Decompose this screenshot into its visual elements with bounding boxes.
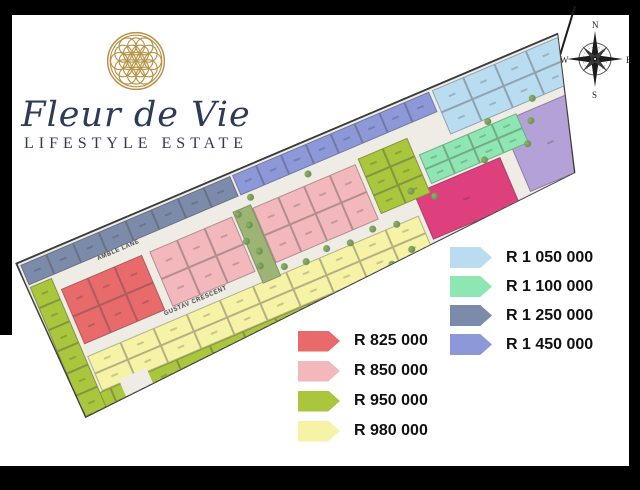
brand-block: Fleur de Vie LIFESTYLE ESTATE bbox=[8, 28, 264, 153]
compass-east-label: E bbox=[626, 55, 632, 65]
legend-item: R 1 050 000 bbox=[450, 243, 593, 272]
legend-swatch-icon bbox=[298, 361, 340, 382]
legend-item: R 980 000 bbox=[298, 416, 428, 446]
brand-name: Fleur de Vie bbox=[8, 98, 264, 132]
price-legend-left: R 825 000R 850 000R 950 000R 980 000 bbox=[298, 326, 428, 446]
legend-swatch-icon bbox=[450, 305, 492, 326]
legend-price-label: R 1 450 000 bbox=[506, 336, 593, 354]
compass-rose-icon: N S W E bbox=[562, 22, 628, 100]
legend-price-label: R 950 000 bbox=[354, 392, 428, 410]
legend-swatch-icon bbox=[298, 331, 340, 352]
brand-tagline: LIFESTYLE ESTATE bbox=[8, 135, 264, 153]
legend-price-label: R 980 000 bbox=[354, 422, 428, 440]
legend-item: R 1 250 000 bbox=[450, 301, 593, 330]
tree-icon bbox=[303, 169, 312, 178]
legend-swatch-icon bbox=[298, 391, 340, 412]
legend-price-label: R 1 250 000 bbox=[506, 307, 593, 325]
legend-item: R 950 000 bbox=[298, 386, 428, 416]
legend-item: R 825 000 bbox=[298, 326, 428, 356]
legend-swatch-icon bbox=[450, 276, 492, 297]
frame-bar-right bbox=[629, 0, 640, 490]
price-legend-right: R 1 050 000R 1 100 000R 1 250 000R 1 450… bbox=[450, 243, 593, 359]
legend-swatch-icon bbox=[298, 421, 340, 442]
legend-price-label: R 850 000 bbox=[354, 362, 428, 380]
legend-price-label: R 1 100 000 bbox=[506, 278, 593, 296]
legend-swatch-icon bbox=[450, 334, 492, 355]
tree-icon bbox=[245, 192, 254, 201]
legend-price-label: R 1 050 000 bbox=[506, 249, 593, 267]
compass-south-label: S bbox=[592, 90, 597, 100]
legend-item: R 1 450 000 bbox=[450, 330, 593, 359]
legend-swatch-icon bbox=[450, 247, 492, 268]
frame-bar-bottom bbox=[0, 466, 640, 490]
legend-price-label: R 825 000 bbox=[354, 332, 428, 350]
frame-bar-top bbox=[0, 0, 640, 15]
legend-item: R 1 100 000 bbox=[450, 272, 593, 301]
legend-item: R 850 000 bbox=[298, 356, 428, 386]
compass-star-icon bbox=[565, 29, 625, 89]
flower-of-life-logo-icon bbox=[103, 28, 169, 94]
